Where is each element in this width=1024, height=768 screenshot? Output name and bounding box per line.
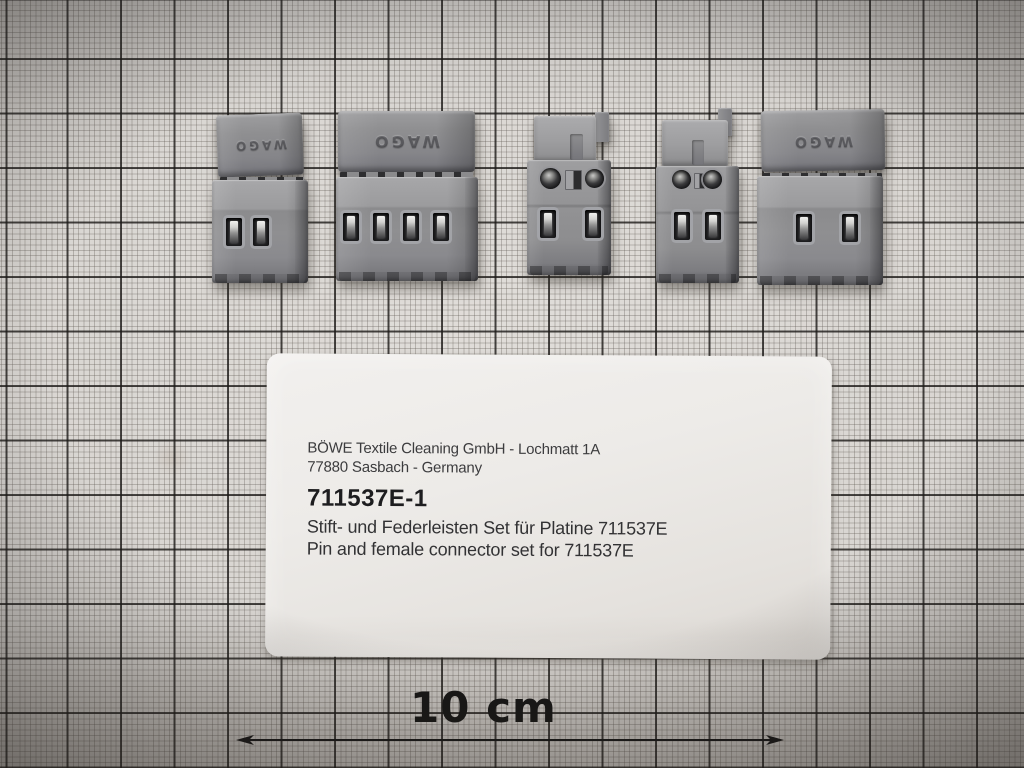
terminal-window xyxy=(842,214,858,242)
connector-5-terminal-row xyxy=(796,214,858,242)
connector-3-latch-tab xyxy=(570,134,583,160)
scale-label: 10 cm xyxy=(410,683,557,732)
connector-3-mounting-hook xyxy=(595,112,609,142)
connector-4-screw-hole-right xyxy=(703,170,722,189)
photo-canvas: WAGO WAGO xyxy=(0,0,1024,768)
metal-contact xyxy=(377,216,385,238)
terminal-window xyxy=(373,213,389,241)
metal-contact xyxy=(257,221,265,243)
connector-4-latch-plate xyxy=(662,120,728,166)
terminal-window xyxy=(585,210,601,238)
metal-contact xyxy=(407,216,415,238)
terminal-window xyxy=(226,218,242,246)
terminal-window xyxy=(253,218,269,246)
connector-3-terminal-row xyxy=(540,210,601,238)
part-number: 711537E-1 xyxy=(307,485,428,514)
metal-contact xyxy=(709,215,717,237)
connector-5: WAGO xyxy=(757,107,888,285)
connector-4-terminal-row xyxy=(674,212,721,240)
company-address-line2: 77880 Sasbach - Germany xyxy=(307,459,482,477)
scale-arrow xyxy=(236,732,784,748)
terminal-window xyxy=(796,214,812,242)
terminal-window xyxy=(433,213,449,241)
connector-1-terminal-row xyxy=(226,218,269,246)
connector-2-cap: WAGO xyxy=(338,111,475,172)
description-english: Pin and female connector set for 711537E xyxy=(307,539,634,562)
metal-contact xyxy=(589,213,597,235)
connector-4 xyxy=(655,108,741,283)
wago-brand-embossed-text: WAGO xyxy=(792,132,853,149)
connector-3-center-slot xyxy=(565,170,582,190)
metal-contact xyxy=(544,213,552,235)
connector-3-screw-hole-left xyxy=(540,168,561,189)
terminal-window xyxy=(540,210,556,238)
terminal-window xyxy=(705,212,721,240)
description-german: Stift- und Federleisten Set für Platine … xyxy=(307,517,668,540)
company-address-line1: BÖWE Textile Cleaning GmbH - Lochmatt 1A xyxy=(307,440,600,459)
metal-contact xyxy=(846,217,854,239)
connector-2-terminal-row xyxy=(343,213,449,241)
wago-brand-embossed-text: WAGO xyxy=(233,137,288,153)
metal-contact xyxy=(347,216,355,238)
connector-2: WAGO xyxy=(336,109,478,281)
connector-3-latch-plate xyxy=(534,116,596,162)
metal-contact xyxy=(437,216,445,238)
metal-contact xyxy=(230,221,238,243)
terminal-window xyxy=(343,213,359,241)
connector-4-latch-tab xyxy=(692,140,704,165)
connector-1: WAGO xyxy=(212,111,308,283)
connector-3-screw-hole-right xyxy=(585,169,604,188)
terminal-window xyxy=(403,213,419,241)
wago-brand-embossed-text: WAGO xyxy=(372,132,440,151)
connector-3 xyxy=(525,112,613,281)
metal-contact xyxy=(800,217,808,239)
connector-4-screw-hole-left xyxy=(672,170,691,189)
connector-5-cap: WAGO xyxy=(760,109,885,172)
metal-contact xyxy=(678,215,686,237)
connector-1-cap: WAGO xyxy=(216,113,304,178)
spec-label-card: BÖWE Textile Cleaning GmbH - Lochmatt 1A… xyxy=(265,353,832,659)
terminal-window xyxy=(674,212,690,240)
